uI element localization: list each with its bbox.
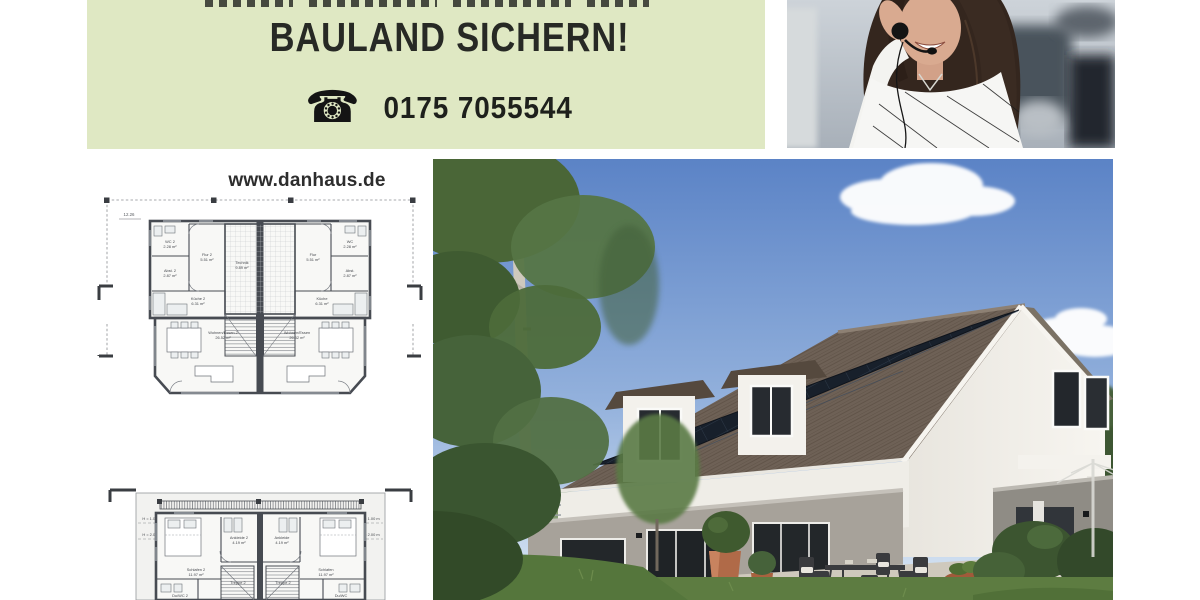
house-photo bbox=[433, 159, 1113, 600]
agent-figure bbox=[849, 0, 1023, 148]
headset-mic bbox=[927, 47, 937, 54]
headset-earcup bbox=[892, 23, 909, 40]
cutoff-text-fragment bbox=[205, 0, 649, 7]
svg-text:9.89 m²: 9.89 m² bbox=[235, 265, 249, 270]
svg-text:6.31 m²: 6.31 m² bbox=[315, 301, 329, 306]
svg-text:2.87 m²: 2.87 m² bbox=[343, 273, 357, 278]
promo-banner: BAULAND SICHERN! ☎ 0175 7055544 bbox=[87, 0, 765, 149]
svg-text:5.51 m²: 5.51 m² bbox=[306, 257, 320, 262]
svg-text:26.52 m²: 26.52 m² bbox=[215, 335, 231, 340]
floorplan-upper: H = 1.00 m H = 1.00 m H = 2.00 m H = 2.0… bbox=[108, 487, 413, 600]
svg-text:12.26: 12.26 bbox=[124, 212, 136, 217]
monitor-shape bbox=[787, 8, 817, 148]
svg-text:Treppe 2: Treppe 2 bbox=[275, 580, 290, 585]
svg-text:6.31 m²: 6.31 m² bbox=[191, 301, 205, 306]
house-illustration bbox=[433, 159, 1113, 600]
agent-photo bbox=[787, 0, 1115, 148]
floorplan-ground: 12.26 Technik 9.89 m² WC 2 2.28 m² Flur … bbox=[95, 196, 425, 451]
phone-number: 0175 7055544 bbox=[383, 90, 572, 126]
svg-text:5.51 m²: 5.51 m² bbox=[200, 257, 214, 262]
svg-text:2.87 m²: 2.87 m² bbox=[163, 273, 177, 278]
svg-text:2.28 m²: 2.28 m² bbox=[343, 244, 357, 249]
banner-headline: BAULAND SICHERN! bbox=[141, 14, 711, 61]
svg-text:2.28 m²: 2.28 m² bbox=[163, 244, 177, 249]
flyer-page: BAULAND SICHERN! ☎ 0175 7055544 bbox=[0, 0, 1200, 600]
rotary-phone-icon: ☎ bbox=[305, 86, 360, 130]
svg-text:4.19 m²: 4.19 m² bbox=[232, 540, 246, 545]
phone-row: ☎ 0175 7055544 bbox=[87, 86, 765, 130]
svg-text:4.19 m²: 4.19 m² bbox=[275, 540, 289, 545]
svg-text:26.52 m²: 26.52 m² bbox=[289, 335, 305, 340]
room-technik: Technik 9.89 m² bbox=[225, 224, 295, 314]
website-url: www.danhaus.de bbox=[142, 170, 472, 192]
svg-text:Du/WC: Du/WC bbox=[335, 593, 348, 598]
agent-photo-illustration bbox=[787, 0, 1115, 148]
svg-text:11.97 m²: 11.97 m² bbox=[318, 572, 334, 577]
wall-lamp bbox=[636, 533, 642, 538]
svg-text:11.97 m²: 11.97 m² bbox=[188, 572, 204, 577]
svg-text:Treppe 2: Treppe 2 bbox=[230, 580, 245, 585]
wall-lamp bbox=[1083, 511, 1089, 517]
balcony-band bbox=[1018, 455, 1111, 469]
svg-text:Du/WC 2: Du/WC 2 bbox=[172, 593, 188, 598]
